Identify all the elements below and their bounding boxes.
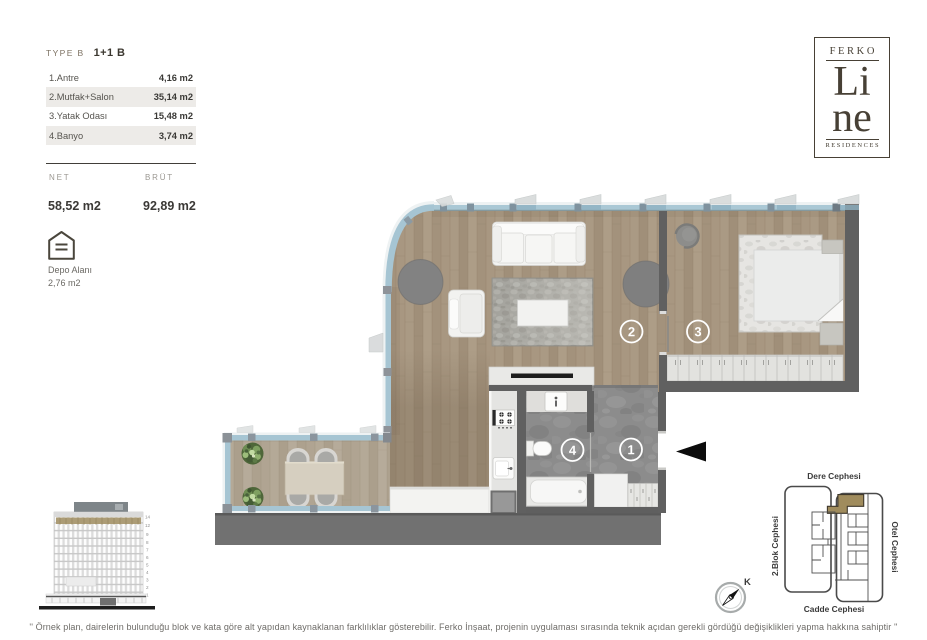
svg-text:9: 9 xyxy=(146,532,149,537)
svg-text:12: 12 xyxy=(145,523,151,528)
svg-text:5: 5 xyxy=(146,563,149,568)
svg-text:Otel Cephesi: Otel Cephesi xyxy=(890,521,900,572)
svg-text:14: 14 xyxy=(145,515,151,520)
svg-text:2.Blok Cephesi: 2.Blok Cephesi xyxy=(770,516,780,576)
svg-text:1: 1 xyxy=(146,593,149,598)
svg-text:8: 8 xyxy=(146,540,149,545)
svg-text:7: 7 xyxy=(146,548,149,553)
svg-text:Dere Cephesi: Dere Cephesi xyxy=(807,471,861,481)
svg-text:K: K xyxy=(744,577,751,588)
svg-text:4: 4 xyxy=(146,570,149,575)
svg-text:2: 2 xyxy=(146,585,149,590)
svg-text:6: 6 xyxy=(146,555,149,560)
svg-text:3: 3 xyxy=(146,578,149,583)
svg-text:Cadde Cephesi: Cadde Cephesi xyxy=(804,604,865,614)
